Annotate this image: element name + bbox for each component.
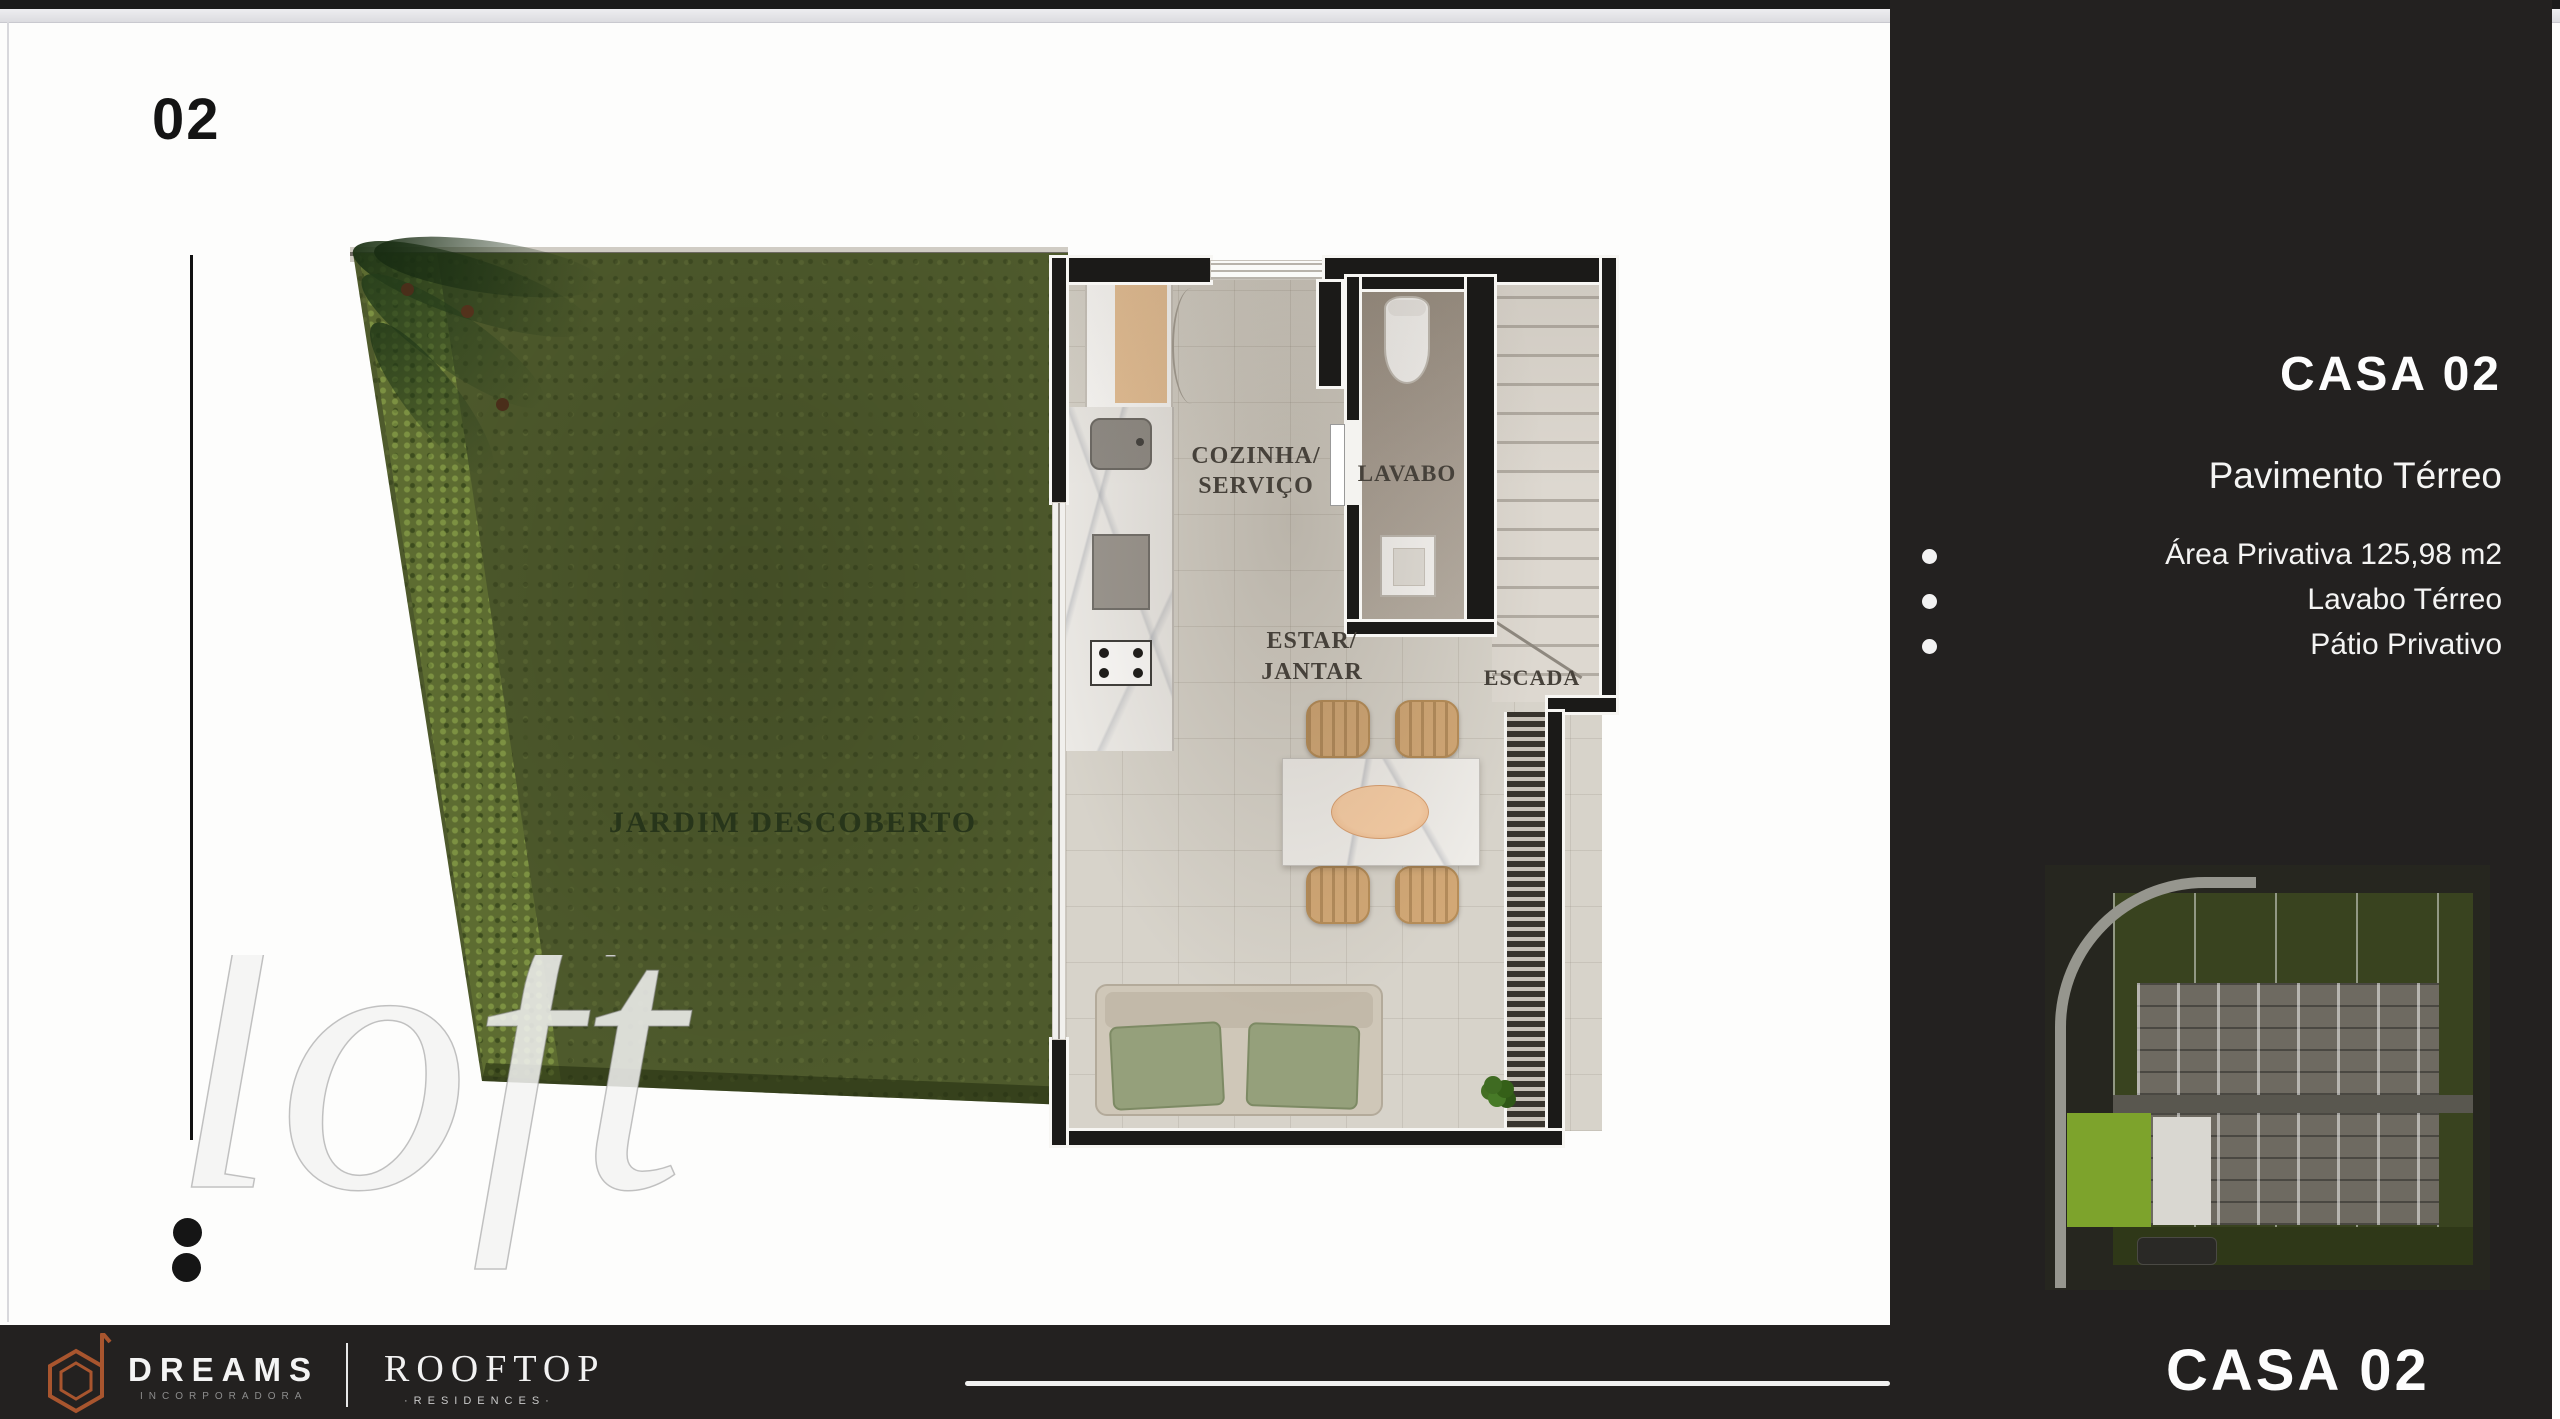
lavabo-sink [1380, 535, 1436, 597]
burner-icon [1133, 648, 1143, 658]
washer-appliance [1085, 280, 1173, 410]
dining-chair [1395, 700, 1459, 758]
lavabo-label: LAVABO [1346, 461, 1468, 487]
project-name: ROOFTOP [384, 1347, 605, 1391]
plant-icon [1484, 1076, 1502, 1094]
dining-table [1282, 758, 1480, 866]
sidebar-bottom-title: CASA 02 [2166, 1337, 2430, 1404]
siteplan-car [2137, 1237, 2217, 1265]
table-platter [1331, 785, 1429, 839]
feature-list: Área Privativa 125,98 m2 Lavabo Térreo P… [1890, 535, 2552, 670]
dining-chair [1306, 866, 1370, 924]
sofa [1095, 984, 1383, 1116]
sofa-cushion [1246, 1022, 1361, 1110]
wall [1052, 1040, 1066, 1145]
garden-label: JARDIM DESCOBERTO [563, 806, 1023, 840]
sofa-cushion [1109, 1021, 1225, 1111]
footer-bar: DREAMS INCORPORADORA ROOFTOP ·RESIDENCES… [0, 1325, 1890, 1419]
lavabo-wall [1467, 277, 1494, 634]
bullet-icon [1922, 639, 1937, 654]
site-plan-thumbnail [2045, 865, 2490, 1290]
footer-divider [346, 1343, 348, 1407]
feature-item: Pátio Privativo [1890, 625, 2552, 670]
feature-label: Área Privativa 125,98 m2 [2165, 538, 2502, 572]
project-subtitle: ·RESIDENCES· [404, 1395, 555, 1407]
toilet [1384, 296, 1430, 384]
slide-number: 02 [152, 86, 221, 153]
sidebar: CASA 02 Pavimento Térreo Área Privativa … [1890, 0, 2552, 1419]
footer-rule [965, 1381, 1890, 1386]
wall [1052, 258, 1066, 502]
decor-dot-2 [172, 1253, 201, 1282]
wall [1548, 698, 1616, 712]
feature-label: Lavabo Térreo [2307, 583, 2502, 617]
sidebar-title: CASA 02 [2280, 347, 2502, 402]
feature-label: Pátio Privativo [2310, 628, 2502, 662]
wall [1052, 1131, 1562, 1145]
kitchen-cabinet [1092, 534, 1150, 610]
living-label: ESTAR/ JANTAR [1242, 626, 1382, 688]
wall [1319, 282, 1341, 386]
siteplan-houses-row [2137, 983, 2439, 1095]
presentation-slide: 02 JARDIM DESCOBERTO [0, 0, 2560, 1419]
dreams-logo-icon [40, 1333, 126, 1419]
bullet-icon [1922, 594, 1937, 609]
left-edge-line [7, 22, 9, 1322]
kitchen-label-line2: SERVIÇO [1171, 471, 1341, 501]
burner-icon [1099, 668, 1109, 678]
living-label-line2: JANTAR [1242, 657, 1382, 688]
wall [1052, 258, 1210, 282]
living-label-line1: ESTAR/ [1242, 626, 1382, 657]
wall [1602, 258, 1616, 712]
stove-cooktop [1090, 640, 1152, 686]
kitchen-label-line1: COZINHA/ [1171, 441, 1341, 471]
stairs-treads [1492, 282, 1602, 702]
feature-item: Área Privativa 125,98 m2 [1890, 535, 2552, 580]
stairs-label: ESCADA [1468, 665, 1596, 691]
washer-panel [1115, 285, 1167, 403]
glass-pane [1058, 503, 1060, 1039]
faucet-icon [1136, 438, 1144, 446]
sink-bowl [1393, 548, 1425, 586]
brand-name: DREAMS [128, 1351, 319, 1389]
garden-glass-door [1052, 502, 1066, 1040]
side-deck-louvers [1504, 712, 1551, 1131]
dining-chair [1306, 700, 1370, 758]
toilet-tank [1388, 300, 1426, 316]
brand-subtitle: INCORPORADORA [140, 1391, 307, 1402]
sidebar-subtitle: Pavimento Térreo [2209, 455, 2502, 497]
siteplan-highlighted-unit [2067, 1113, 2151, 1227]
sofa-back [1105, 992, 1373, 1028]
vertical-rule [190, 255, 193, 1140]
burner-icon [1099, 648, 1109, 658]
burner-icon [1133, 668, 1143, 678]
decor-dot-1 [173, 1218, 202, 1247]
washer-door-arc [1172, 288, 1212, 404]
wall [1548, 712, 1562, 1145]
garden-area: JARDIM DESCOBERTO [353, 253, 1068, 1105]
pine-cone-icon [401, 283, 414, 296]
siteplan-street [2113, 1095, 2473, 1113]
feature-item: Lavabo Térreo [1890, 580, 2552, 625]
kitchen-sink [1090, 418, 1152, 470]
bullet-icon [1922, 549, 1937, 564]
kitchen-label: COZINHA/ SERVIÇO [1171, 441, 1341, 501]
siteplan-unit-roof [2153, 1117, 2211, 1225]
dining-chair [1395, 866, 1459, 924]
kitchen-window [1210, 260, 1325, 280]
